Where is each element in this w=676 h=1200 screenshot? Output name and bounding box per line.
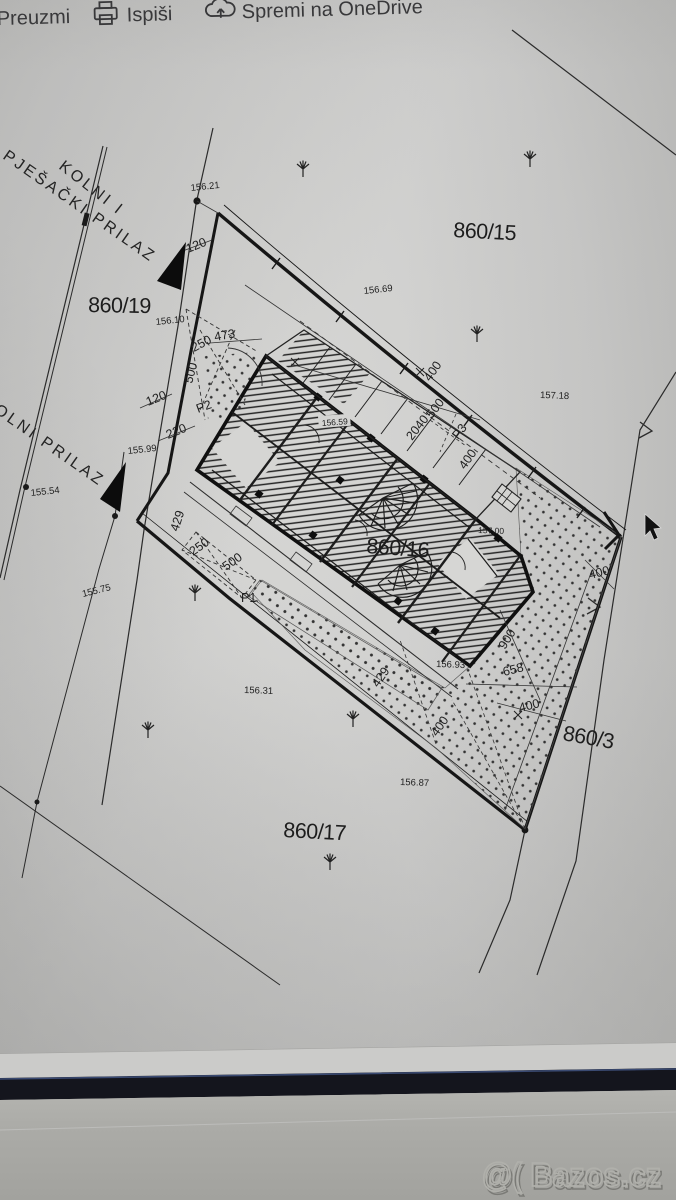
svg-text:Preuzmi: Preuzmi [0,6,70,30]
svg-text:860/19: 860/19 [88,293,151,318]
svg-text:860/15: 860/15 [453,218,517,245]
svg-text:Ispiši: Ispiši [126,3,172,26]
svg-text:157.00: 157.00 [478,525,505,536]
svg-text:P1: P1 [241,591,256,605]
svg-text:156.87: 156.87 [400,777,429,789]
svg-text:@( Bazos.cz: @( Bazos.cz [482,1156,661,1193]
svg-text:156.93: 156.93 [436,659,465,671]
svg-text:156.31: 156.31 [244,685,273,697]
svg-text:157.18: 157.18 [540,390,569,402]
svg-text:156.59: 156.59 [321,416,348,428]
svg-text:860/17: 860/17 [283,818,347,845]
svg-text:860/16: 860/16 [366,534,431,562]
